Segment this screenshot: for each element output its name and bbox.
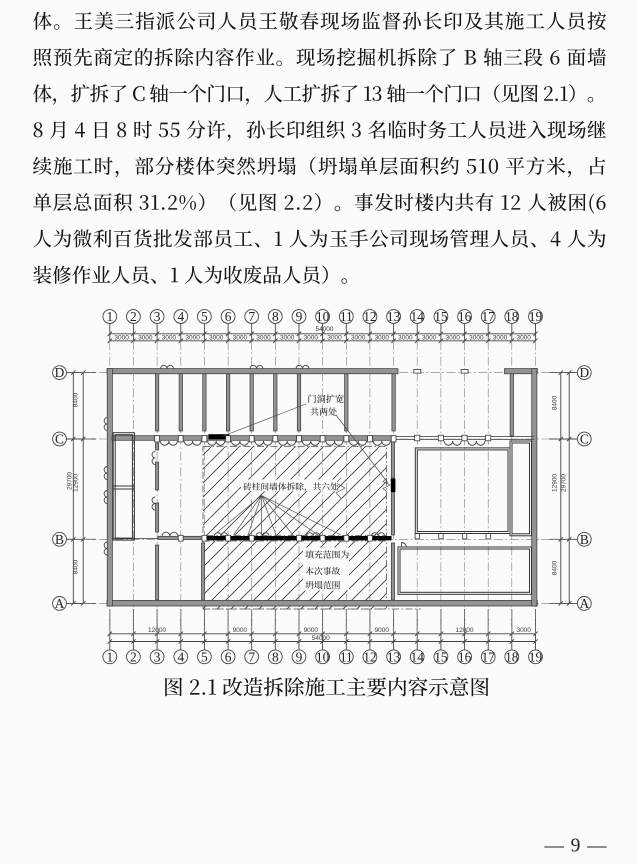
svg-text:9: 9: [296, 309, 303, 324]
svg-text:3000: 3000: [469, 335, 484, 342]
svg-text:9000: 9000: [304, 627, 319, 634]
svg-text:3000: 3000: [398, 335, 413, 342]
svg-text:3000: 3000: [493, 335, 508, 342]
svg-text:14: 14: [411, 649, 425, 664]
svg-text:14: 14: [411, 309, 425, 324]
svg-text:9000: 9000: [375, 627, 390, 634]
svg-text:11: 11: [340, 309, 353, 324]
svg-text:4: 4: [177, 309, 184, 324]
svg-text:16: 16: [458, 649, 472, 664]
svg-text:3000: 3000: [304, 335, 319, 342]
svg-text:12900: 12900: [552, 474, 559, 492]
svg-text:10: 10: [316, 309, 330, 324]
svg-text:8: 8: [272, 649, 279, 664]
svg-text:54000: 54000: [315, 326, 333, 333]
svg-text:2: 2: [130, 649, 137, 664]
svg-text:3: 3: [154, 649, 161, 664]
svg-text:A: A: [579, 596, 589, 611]
svg-text:19: 19: [529, 309, 543, 324]
svg-text:5: 5: [201, 649, 208, 664]
svg-text:D: D: [579, 365, 589, 380]
svg-text:3000: 3000: [256, 335, 271, 342]
svg-text:C: C: [55, 432, 64, 447]
svg-text:16: 16: [458, 309, 472, 324]
svg-text:8400: 8400: [73, 392, 80, 407]
svg-text:12: 12: [363, 309, 376, 324]
svg-text:7: 7: [248, 309, 255, 324]
svg-text:18: 18: [505, 649, 519, 664]
svg-text:3000: 3000: [280, 335, 295, 342]
svg-text:1: 1: [106, 649, 113, 664]
svg-text:6: 6: [225, 649, 232, 664]
svg-text:2: 2: [130, 309, 137, 324]
svg-text:3000: 3000: [114, 335, 129, 342]
svg-text:29700: 29700: [67, 472, 74, 490]
svg-text:17: 17: [482, 649, 496, 664]
svg-text:15: 15: [434, 649, 448, 664]
svg-text:13: 13: [387, 649, 401, 664]
svg-text:3000: 3000: [233, 335, 248, 342]
svg-text:3000: 3000: [516, 627, 531, 634]
svg-text:4: 4: [177, 649, 184, 664]
svg-text:8400: 8400: [552, 395, 559, 410]
svg-text:A: A: [55, 596, 65, 611]
svg-text:18: 18: [505, 309, 519, 324]
svg-text:3000: 3000: [138, 335, 153, 342]
svg-text:10: 10: [316, 649, 330, 664]
svg-text:3000: 3000: [209, 335, 224, 342]
svg-text:B: B: [55, 532, 64, 547]
svg-text:12000: 12000: [148, 627, 166, 634]
svg-text:8400: 8400: [73, 559, 80, 574]
svg-text:3000: 3000: [327, 335, 342, 342]
svg-text:3000: 3000: [422, 335, 437, 342]
svg-text:8: 8: [272, 309, 279, 324]
svg-text:3000: 3000: [516, 335, 531, 342]
svg-text:3000: 3000: [375, 335, 390, 342]
svg-text:D: D: [55, 365, 65, 380]
svg-text:1: 1: [106, 309, 113, 324]
svg-text:17: 17: [482, 309, 496, 324]
svg-text:C: C: [580, 432, 589, 447]
svg-text:7: 7: [248, 649, 255, 664]
svg-text:3000: 3000: [445, 335, 460, 342]
svg-text:3: 3: [154, 309, 161, 324]
svg-text:29700: 29700: [561, 474, 568, 492]
svg-text:54000: 54000: [312, 635, 330, 642]
svg-text:3000: 3000: [185, 335, 200, 342]
svg-text:12000: 12000: [455, 627, 473, 634]
svg-text:8400: 8400: [552, 560, 559, 575]
svg-text:11: 11: [340, 649, 353, 664]
svg-text:5: 5: [201, 309, 208, 324]
svg-text:15: 15: [434, 309, 448, 324]
svg-text:9: 9: [296, 649, 303, 664]
svg-text:6: 6: [225, 309, 232, 324]
svg-text:3000: 3000: [351, 335, 366, 342]
svg-text:12: 12: [363, 649, 376, 664]
svg-text:9000: 9000: [233, 627, 248, 634]
svg-text:B: B: [580, 532, 589, 547]
svg-text:19: 19: [529, 649, 543, 664]
svg-text:3000: 3000: [162, 335, 177, 342]
svg-text:— 9 —: — 9 —: [544, 836, 608, 857]
svg-text:12900: 12900: [73, 474, 80, 492]
svg-text:13: 13: [387, 309, 401, 324]
